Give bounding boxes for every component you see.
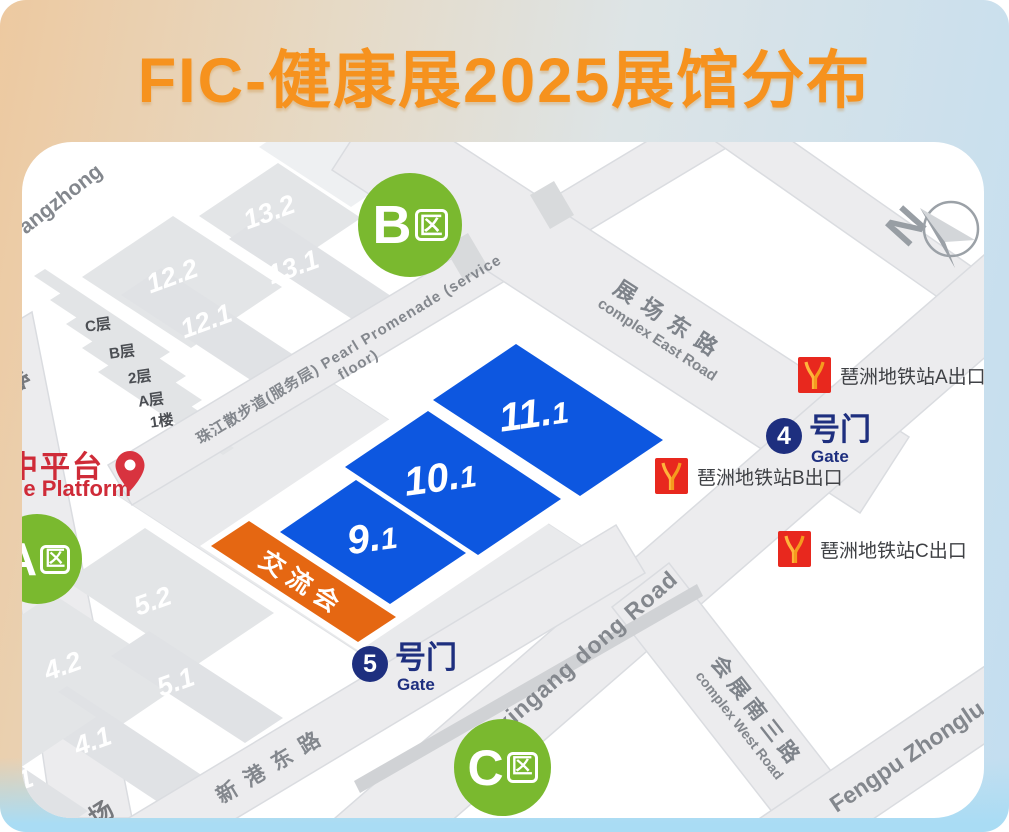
venue-map: 珠江散步道(服务层) Pearl Promenade (service floo… xyxy=(22,142,984,818)
gate-5-number: 5 xyxy=(352,646,388,682)
metro-exit-c[interactable]: 琶洲地铁站C出口 xyxy=(778,530,967,568)
floor-label-b: B层 xyxy=(108,339,137,363)
hall-9-1-main: 9. xyxy=(344,515,383,563)
zone-c-area: 区 xyxy=(507,752,538,782)
metro-icon xyxy=(655,457,688,495)
gate-5[interactable]: 5 号门 Gate xyxy=(352,642,457,695)
hall-label-11-1[interactable]: 11.1 xyxy=(496,387,571,441)
compass-icon: N xyxy=(842,162,984,312)
hall-11-1-main: 11. xyxy=(496,390,554,441)
compass-north-label: N xyxy=(875,196,936,255)
metro-exit-c-label: 琶洲地铁站C出口 xyxy=(820,536,967,563)
infographic-page: FIC-健康展2025展馆分布 xyxy=(0,0,1009,832)
zone-badge-c[interactable]: C 区 xyxy=(454,719,551,816)
metro-icon xyxy=(778,530,811,568)
metro-exit-a[interactable]: 琶洲地铁站A出口 xyxy=(798,356,984,394)
page-title: FIC-健康展2025展馆分布 xyxy=(0,30,1009,121)
metro-exit-a-label: 琶洲地铁站A出口 xyxy=(840,362,984,389)
gate-4-label: 号门 xyxy=(809,412,871,447)
map-pin-icon[interactable] xyxy=(114,450,146,492)
metro-exit-b-label: 琶洲地铁站B出口 xyxy=(697,463,843,490)
floor-label-2: 2层 xyxy=(127,364,153,388)
gate-5-sublabel: Gate xyxy=(397,675,457,695)
metro-icon xyxy=(798,356,831,394)
hall-10-1-main: 10. xyxy=(401,454,462,505)
zone-badge-b[interactable]: B 区 xyxy=(358,173,462,277)
floor-label-c: C层 xyxy=(84,312,113,336)
zone-c-letter: C xyxy=(467,739,503,797)
hall-label-9-1[interactable]: 9.1 xyxy=(344,513,400,565)
zone-b-area: 区 xyxy=(415,209,448,241)
metro-exit-b[interactable]: 琶洲地铁站B出口 xyxy=(655,457,843,495)
zone-b-letter: B xyxy=(373,194,412,256)
floor-label-1f: 1楼 xyxy=(149,408,175,432)
gate-4-number: 4 xyxy=(766,418,802,454)
floor-label-a: A层 xyxy=(137,387,166,411)
zone-a-letter: A xyxy=(22,532,37,586)
zone-a-area: 区 xyxy=(40,545,70,574)
gate-5-label: 号门 xyxy=(395,640,457,675)
